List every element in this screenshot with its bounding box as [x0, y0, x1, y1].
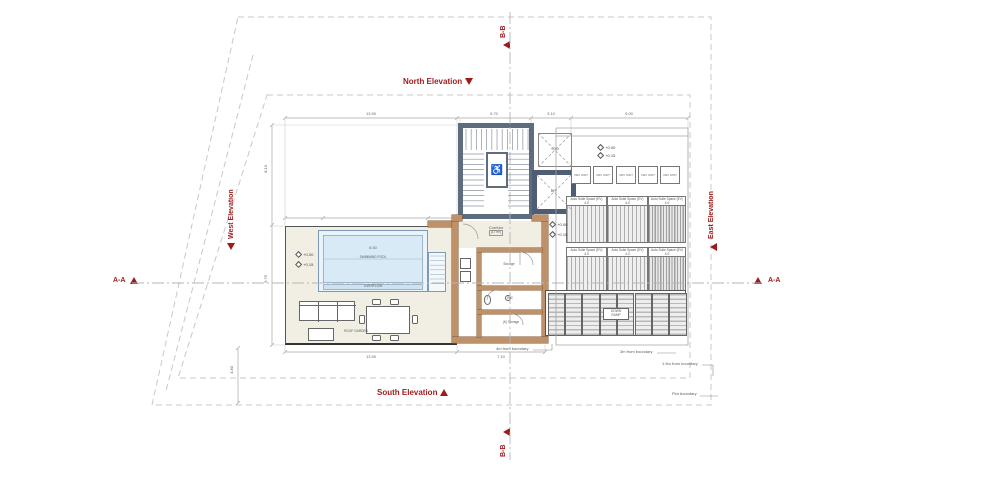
- level-diamond-icon: [549, 221, 556, 228]
- appliance: [460, 271, 471, 282]
- corridor-area-tag: (17 m²): [489, 230, 503, 236]
- section-bb-bottom-arrow-icon: [503, 428, 510, 436]
- partition-h3: [477, 310, 542, 314]
- wall-south: [452, 337, 548, 343]
- ramp-label: DOWN RAMP: [603, 308, 629, 320]
- roof-unit-box: VRV UNIT: [660, 166, 680, 184]
- wall-west: [452, 215, 458, 343]
- dining-chair: [412, 315, 418, 324]
- section-aa-right-arrow-icon: [754, 277, 762, 284]
- level-diamond-icon: [597, 152, 604, 159]
- level-diamond-icon: [295, 261, 302, 268]
- dim-top-4: 9.00: [625, 111, 633, 116]
- section-bb-bottom-label: B-B: [500, 439, 507, 457]
- dining-chair: [359, 315, 365, 324]
- boundary-note-1-5m: 1.5m from boundary: [662, 362, 698, 366]
- roof-garden-label: ROOF GARDEN: [336, 329, 376, 335]
- level-marker: +0.15: [598, 153, 615, 158]
- west-elevation-arrow-icon: [227, 243, 235, 250]
- dim-bottom-2: 7.10: [497, 354, 505, 359]
- pool-steps: [428, 252, 446, 292]
- overflow-label: OVERFLOW: [364, 285, 382, 289]
- roof-unit-box: VRV UNIT: [638, 166, 658, 184]
- pool-label: SWIMMING POOL: [333, 254, 413, 262]
- level-diamond-icon: [549, 231, 556, 238]
- dining-chair: [372, 299, 381, 305]
- storage-room: [481, 252, 542, 286]
- partition-h1: [477, 248, 542, 252]
- pool-overflow-strip: OVERFLOW: [323, 284, 423, 290]
- void-label: VOID: [551, 148, 559, 152]
- dim-top-1: 13.90: [366, 111, 376, 116]
- floor-plan-canvas: OVERFLOW 8.50 SWIMMING POOL ROOF GARDEN …: [0, 0, 1000, 500]
- partition-vertical: [477, 248, 481, 337]
- louvre-panel: [669, 293, 686, 336]
- section-aa-left-arrow-icon: [130, 277, 138, 284]
- section-bb-top-arrow-icon: [503, 41, 510, 49]
- louvre-panel: [582, 293, 599, 336]
- parking-bay-hatch: [566, 205, 607, 243]
- boundary-note-3m: 3m from boundary: [620, 350, 652, 354]
- wc-label: W.C: [500, 296, 520, 302]
- wall-north-left: [452, 215, 462, 221]
- k-storage-label: (K) Storage: [496, 320, 526, 326]
- boundary-note-4m: 4m from boundary: [496, 347, 528, 351]
- dining-chair: [372, 335, 381, 341]
- east-elevation-arrow-icon: [710, 243, 717, 251]
- roof-unit-box: VRV UNIT: [571, 166, 591, 184]
- wheelchair-icon: ♿: [491, 165, 503, 176]
- level-diamond-icon: [295, 251, 302, 258]
- level-diamond-icon: [597, 144, 604, 151]
- north-elevation-label: North Elevation: [403, 77, 473, 86]
- level-marker: +0.00: [550, 222, 567, 227]
- dim-left-2: 9.75: [264, 275, 268, 283]
- boundary-note-plot: Plot boundary: [672, 392, 697, 396]
- level-marker: +0.00: [296, 252, 313, 257]
- level-marker: +0.15: [550, 232, 567, 237]
- dining-chair: [390, 335, 399, 341]
- void-square: VOID: [538, 133, 572, 167]
- dim-left-1: 8.10: [264, 165, 268, 173]
- south-elevation-label: South Elevation: [377, 388, 448, 397]
- appliance: [460, 258, 471, 269]
- parking-bay-hatch: [648, 205, 686, 243]
- storage-label: Storage: [494, 262, 524, 268]
- elevator: ♿: [486, 152, 508, 188]
- level-marker: +0.15: [296, 262, 313, 267]
- section-bb-top-label: B-B: [500, 20, 507, 38]
- sofa-backrest: [300, 302, 356, 306]
- louvre-panel: [652, 293, 669, 336]
- toilet: [484, 295, 491, 305]
- roof-unit-box: VRV UNIT: [616, 166, 636, 184]
- louvre-panel: [635, 293, 652, 336]
- pool-width-dim: 8.50: [369, 245, 377, 250]
- dim-top-2: 5.70: [490, 111, 498, 116]
- north-elevation-arrow-icon: [465, 78, 473, 85]
- west-elevation-label: West Elevation: [228, 183, 235, 239]
- corridor-label-group: Corridor (17 m²): [478, 224, 514, 238]
- parking-bay-hatch: [607, 205, 648, 243]
- roof-unit-box: VRV UNIT: [593, 166, 613, 184]
- section-aa-left-label: A-A: [113, 277, 125, 284]
- louvre-panel: [565, 293, 582, 336]
- dining-chair: [390, 299, 399, 305]
- wall-north-right: [532, 215, 548, 221]
- louvre-panel: [548, 293, 565, 336]
- sofa: [299, 301, 355, 321]
- south-elevation-arrow-icon: [440, 389, 448, 396]
- coffee-table: [308, 328, 334, 341]
- dim-top-3: 3.10: [547, 111, 555, 116]
- section-aa-right-label: A-A: [768, 277, 780, 284]
- level-marker: +0.00: [598, 145, 615, 150]
- partition-h2: [477, 286, 542, 290]
- louvre-area: DOWN RAMP: [545, 290, 686, 336]
- east-elevation-label: East Elevation: [708, 183, 715, 239]
- dim-bottom-1: 13.90: [366, 354, 376, 359]
- lift-label: LIFT: [551, 190, 558, 194]
- dim-side: 4.80: [230, 366, 234, 374]
